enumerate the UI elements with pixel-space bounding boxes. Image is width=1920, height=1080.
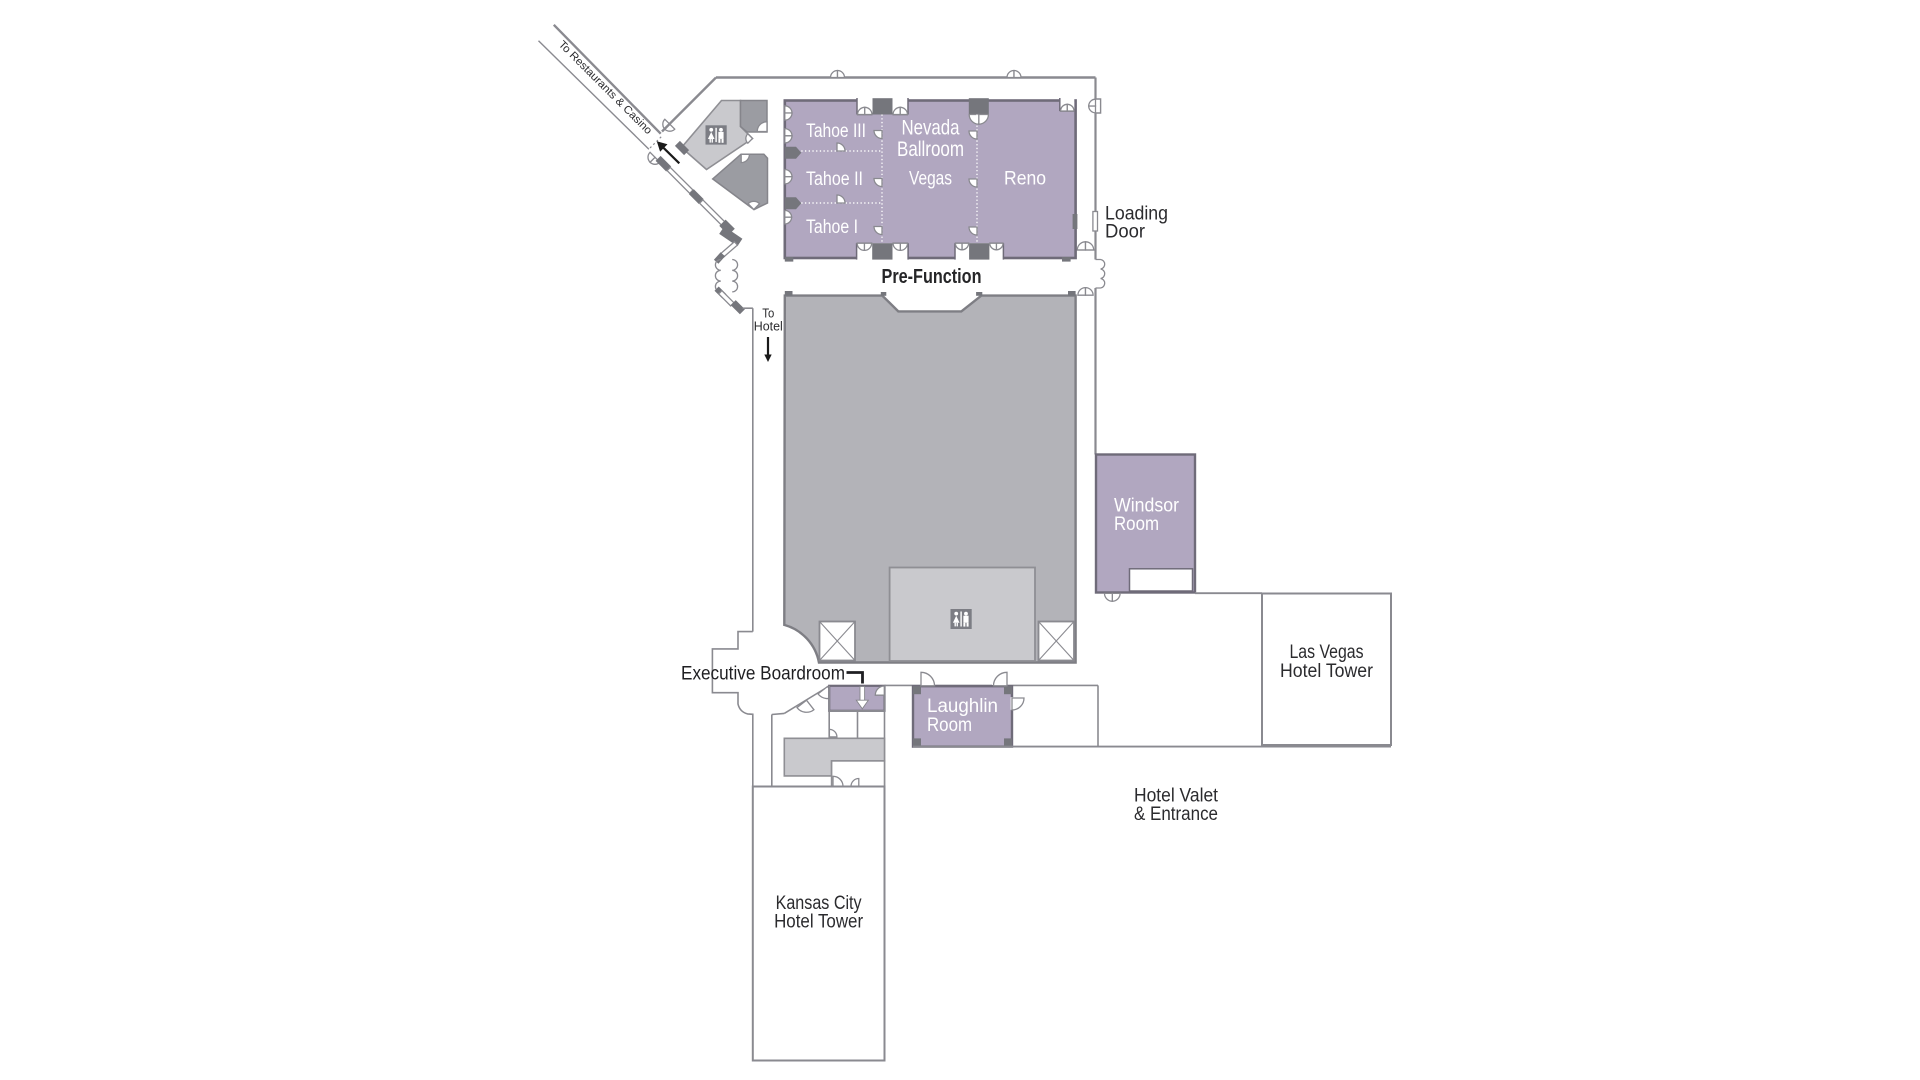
svg-text:Reno: Reno — [1004, 169, 1046, 190]
svg-text:Room: Room — [927, 715, 972, 736]
svg-text:Ballroom: Ballroom — [897, 138, 964, 161]
svg-text:Hotel Tower: Hotel Tower — [774, 912, 864, 933]
svg-text:& Entrance: & Entrance — [1134, 804, 1218, 825]
svg-text:Pre-Function: Pre-Function — [882, 266, 982, 288]
svg-text:Tahoe I: Tahoe I — [806, 217, 858, 238]
svg-text:Tahoe II: Tahoe II — [806, 169, 863, 190]
svg-text:Door: Door — [1105, 222, 1146, 243]
svg-text:Las Vegas: Las Vegas — [1290, 642, 1364, 663]
svg-text:Laughlin: Laughlin — [927, 696, 998, 717]
svg-text:Tahoe III: Tahoe III — [806, 121, 866, 142]
svg-text:Room: Room — [1114, 514, 1159, 535]
svg-text:Executive Boardroom: Executive Boardroom — [681, 664, 845, 685]
svg-text:Nevada: Nevada — [902, 117, 960, 140]
svg-text:Vegas: Vegas — [909, 169, 952, 190]
svg-text:Hotel Tower: Hotel Tower — [1280, 661, 1374, 682]
svg-text:Hotel: Hotel — [754, 319, 783, 334]
